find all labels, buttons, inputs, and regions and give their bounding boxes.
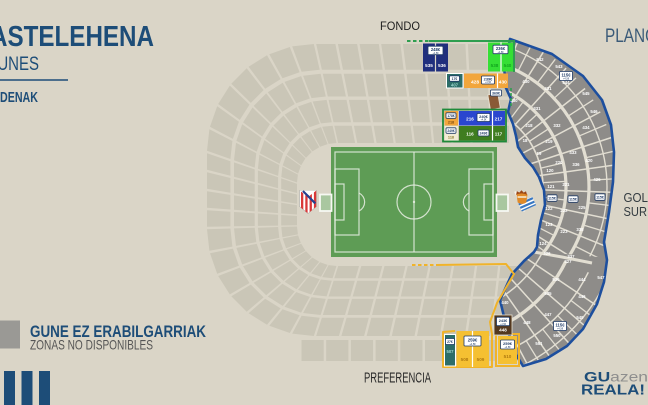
svg-text:428: 428 [471, 80, 479, 86]
svg-text:538: 538 [491, 63, 499, 68]
svg-text:19: 19 [537, 151, 542, 156]
svg-text:542: 542 [536, 57, 544, 62]
svg-text:240€: 240€ [479, 114, 488, 119]
svg-text:178€: 178€ [447, 114, 455, 118]
svg-text:545: 545 [582, 91, 590, 96]
svg-text:440: 440 [501, 300, 509, 305]
svg-text:116: 116 [466, 132, 474, 137]
svg-text:433: 433 [569, 150, 577, 155]
svg-text:448: 448 [523, 320, 531, 325]
svg-text:243€: 243€ [499, 319, 508, 323]
svg-text:217: 217 [495, 117, 503, 122]
svg-text:407: 407 [451, 83, 459, 88]
svg-text:249€: 249€ [447, 129, 455, 133]
svg-text:510: 510 [504, 354, 512, 359]
svg-text:FONDO: FONDO [380, 19, 420, 33]
svg-text:507: 507 [447, 349, 455, 354]
svg-text:249€: 249€ [480, 132, 488, 136]
svg-text:332: 332 [553, 123, 561, 128]
svg-text:ASTELEHENA: ASTELEHENA [0, 21, 154, 53]
svg-text:115€: 115€ [596, 196, 604, 200]
svg-text:219: 219 [545, 139, 553, 144]
svg-text:331: 331 [533, 106, 541, 111]
svg-text:543: 543 [555, 64, 563, 69]
svg-text:239€: 239€ [484, 77, 493, 82]
svg-text:430: 430 [522, 79, 530, 84]
svg-text:+4,5€: +4,5€ [563, 78, 570, 81]
svg-text:336: 336 [572, 162, 580, 167]
svg-text:551: 551 [535, 341, 543, 346]
svg-text:338: 338 [576, 227, 584, 232]
svg-text:17€: 17€ [452, 77, 458, 81]
svg-text:447: 447 [544, 312, 552, 317]
svg-text:+4,5€: +4,5€ [504, 346, 511, 349]
svg-text:218: 218 [525, 123, 533, 128]
svg-text:444: 444 [578, 277, 586, 282]
svg-text:PREFERENCIA: PREFERENCIA [364, 370, 431, 387]
svg-text:117: 117 [495, 132, 503, 137]
svg-text:+4,5€: +4,5€ [485, 82, 492, 84]
svg-text:118: 118 [448, 136, 454, 140]
svg-text:+4,5€: +4,5€ [469, 343, 476, 346]
svg-text:509: 509 [477, 357, 485, 362]
svg-text:+4,5€: +4,5€ [481, 120, 488, 122]
svg-text:259€: 259€ [468, 338, 478, 343]
svg-text:121: 121 [547, 184, 555, 189]
svg-text:115€: 115€ [548, 197, 556, 201]
svg-text:326: 326 [543, 251, 551, 256]
svg-text:448: 448 [499, 328, 507, 333]
svg-text:327: 327 [564, 259, 572, 264]
svg-text:550: 550 [553, 333, 561, 338]
svg-text:GOL: GOL [624, 190, 648, 205]
svg-text:18: 18 [523, 138, 528, 143]
svg-text:431: 431 [544, 86, 552, 91]
svg-text:218: 218 [448, 121, 454, 125]
svg-text:+4,5€: +4,5€ [500, 324, 507, 326]
svg-text:508: 508 [461, 357, 469, 362]
svg-text:222: 222 [560, 208, 568, 213]
svg-text:ZONAS NO DISPONIBLES: ZONAS NO DISPONIBLES [30, 338, 153, 353]
svg-text:420: 420 [585, 158, 593, 163]
svg-text:123: 123 [545, 222, 553, 227]
svg-text:SUR: SUR [624, 204, 648, 219]
svg-text:122: 122 [545, 206, 553, 211]
svg-text:LUNES: LUNES [0, 53, 39, 75]
svg-text:DENAK: DENAK [0, 90, 38, 106]
svg-text:REALA!: REALA! [581, 383, 645, 399]
svg-text:535: 535 [544, 291, 552, 296]
svg-text:221: 221 [562, 182, 570, 187]
svg-text:120: 120 [546, 168, 554, 173]
svg-text:27€: 27€ [447, 340, 453, 344]
svg-text:124: 124 [539, 241, 547, 246]
svg-text:430: 430 [499, 80, 507, 86]
svg-text:530: 530 [552, 277, 560, 282]
svg-text:115€: 115€ [569, 198, 577, 202]
svg-text:220: 220 [555, 160, 563, 165]
svg-text:225: 225 [578, 205, 586, 210]
svg-text:+4,5€: +4,5€ [497, 51, 504, 54]
svg-text:547: 547 [597, 275, 605, 280]
svg-text:223: 223 [560, 229, 568, 234]
svg-text:536: 536 [438, 63, 446, 68]
svg-text:535: 535 [425, 63, 433, 68]
svg-text:+4,5€: +4,5€ [557, 328, 564, 331]
svg-text:369€: 369€ [492, 92, 500, 96]
svg-text:546: 546 [590, 109, 598, 114]
svg-text:434: 434 [582, 125, 590, 130]
svg-text:+4,5€: +4,5€ [432, 52, 439, 55]
svg-text:549: 549 [576, 315, 584, 320]
svg-text:PLANO: PLANO [605, 25, 648, 47]
svg-text:540: 540 [504, 63, 512, 68]
svg-text:446: 446 [578, 294, 586, 299]
svg-text:216: 216 [466, 117, 474, 122]
svg-text:426: 426 [593, 177, 601, 182]
